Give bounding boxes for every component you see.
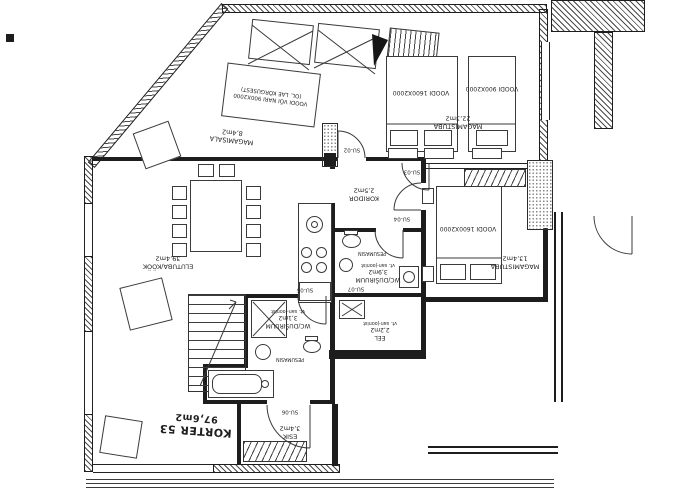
label-eel: EEL 2,2m2 vt. san-joonist [363,319,397,341]
window-right-bedroom [541,42,550,120]
wall-left-a [84,156,93,204]
label-wc-vaike: WC/DUŠIRUUM 3,1m2 vt. san-joonist [266,307,311,329]
wall-esik-left [237,404,241,464]
duct-black [324,153,336,166]
skylight-icon-b [314,23,380,69]
label-magamistuba-suur: MAGAMISTUBA 22,3m2 [434,114,483,131]
label-washer-lower: PESUMASIN [276,355,304,361]
wall-top [222,4,547,13]
chair [172,224,187,238]
nightstand [388,148,418,159]
door-arc-landing [594,216,632,254]
pillow [424,130,452,146]
chair [246,205,261,219]
window-left-a [84,204,93,256]
electrical-box-icon [339,300,365,319]
label-magamisala: MAGAMISALA 8,4m2 [209,125,254,146]
door-tag-su05: SU-05 [297,285,314,292]
terrace-edge [86,479,554,489]
wall-esik-top-a [203,400,267,404]
wall-h-wc-top-b [403,228,423,232]
chair [198,164,214,177]
apartment-title: KORTER 53 97,6m2 [159,408,233,440]
door-tag-su04: SU-04 [394,214,411,221]
label-elutuba: ELUTUBA/KÖÖK 39,4m2 [143,254,193,271]
landing-edge-a [428,446,558,448]
wardrobe-chimney-strip [527,160,553,230]
wall-esik-right [332,404,338,466]
wall-h-wc-eel [332,293,423,297]
nightstand [472,148,502,159]
stove-burner [301,262,312,273]
label-bed-second: VOODI 1600X2000 [440,224,496,232]
nightstand [424,148,454,159]
door-tag-su03: SU-03 [404,167,421,174]
stove-burner [316,262,327,273]
wall-wc2-right [330,294,335,404]
balcony-rail-b [561,212,563,402]
wall-h-bedroom13-bottom [426,297,546,302]
bathtub-drain [261,380,269,388]
bathtub-inner [212,374,262,394]
armchair [99,415,142,458]
washbasin-icon [339,258,353,272]
chair [246,243,261,257]
toilet-icon [303,340,321,353]
label-magamistuba-vaike: MAGAMISTUBA 13,4m2 [491,254,540,271]
label-koridor: KORIDOR 2,5m2 [349,186,379,203]
label-washer-upper: PESUMASIN [358,249,386,255]
label-esik: ESIK 3,4m2 [280,424,301,441]
nightstand [422,188,434,204]
neighbor-strip [594,32,613,129]
wall-left-b [84,256,93,332]
entry-closet [243,441,307,462]
wall-h-magamisala [92,157,338,161]
marker-square [6,34,14,42]
floor-plan-canvas: KORTER 53 97,6m2 ELUTUBA/KÖÖK 39,4m2 MAG… [0,0,700,500]
chair [172,186,187,200]
toilet-icon [342,234,361,248]
chair [246,186,261,200]
washing-machine-drum [403,271,415,283]
wall-left-c [84,414,93,472]
armchair [133,121,182,170]
window-left-b [84,332,93,414]
wall-v-koridor-right-a [421,157,426,183]
chair [219,164,235,177]
wall-v-bedroom13-right [543,228,548,302]
door-arc-su04 [394,183,421,210]
stove-burner [301,247,312,258]
sink-drain [311,221,318,228]
door-tag-su06: SU-06 [282,407,299,414]
armchair [119,277,172,330]
pillow [390,130,418,146]
toilet-tank [305,336,318,341]
door-tag-su02: SU-02 [344,145,361,152]
pillow [476,130,508,146]
skylight-icon-a [248,19,314,65]
landing-edge-b [428,452,558,454]
stove-burner [316,247,327,258]
label-bed-master: VOODI 1600X2000 [393,88,449,96]
wall-h-eel-bottom [329,350,426,359]
wall-bottom [213,464,340,473]
label-bed-single: VOODI 900X2000 [466,84,519,92]
wall-wc2-top-a [244,294,298,298]
chair [172,205,187,219]
toilet-tank [344,230,358,235]
pillow [440,264,466,280]
neighbor-block [551,0,645,32]
window-bottom [93,464,213,473]
chair [246,224,261,238]
dining-table [190,180,242,252]
wardrobe-rail [464,169,526,187]
door-tag-su07: SU-07 [348,284,365,291]
washbasin-icon [255,344,271,360]
label-wc-suur: WC/DUŠIRUUM 3,9m2 vt. san-joonist [356,261,401,283]
balcony-rail-a [554,212,556,402]
nightstand [422,266,434,282]
